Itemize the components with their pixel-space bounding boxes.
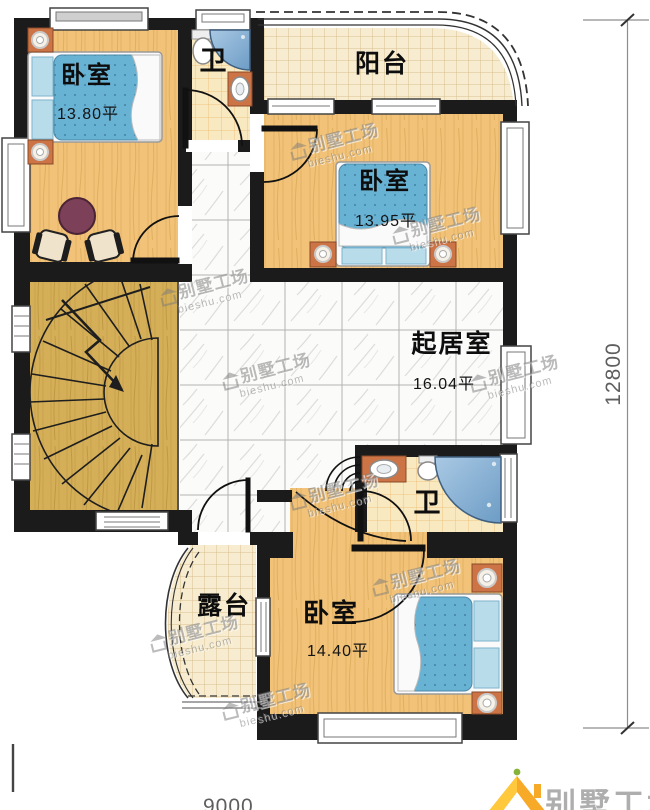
logo-house-icon (488, 769, 546, 810)
bed-icon (394, 594, 502, 694)
sink-icon (362, 456, 406, 482)
room-label-bathroom1: 卫 (198, 48, 230, 75)
sink-icon (228, 72, 252, 106)
room-label-living: 起居室 (404, 332, 500, 357)
room-area-bedroom3: 14.40平 (294, 644, 382, 660)
room-label-balcony: 阳台 (346, 52, 418, 77)
table-icon (59, 198, 95, 234)
logo-brand-text: 别墅工场 (545, 779, 650, 810)
dimension-bottom: 9000 (203, 795, 254, 810)
room-label-bathroom2: 卫 (412, 490, 444, 517)
floorplan-page: 卧室 13.80平 卫 阳台 卧室 13.95平 起居室 16.04平 卫 露台… (0, 0, 650, 810)
room-label-bedroom3: 卧室 (298, 600, 364, 626)
room-area-bedroom1: 13.80平 (46, 107, 130, 123)
room-label-bedroom1: 卧室 (52, 64, 122, 88)
room-label-terrace: 露台 (192, 594, 256, 619)
room-area-living: 16.04平 (404, 377, 484, 393)
room-area-bedroom2: 13.95平 (346, 214, 426, 230)
room-label-bedroom2: 卧室 (350, 170, 420, 194)
dimension-right: 12800 (602, 339, 626, 409)
